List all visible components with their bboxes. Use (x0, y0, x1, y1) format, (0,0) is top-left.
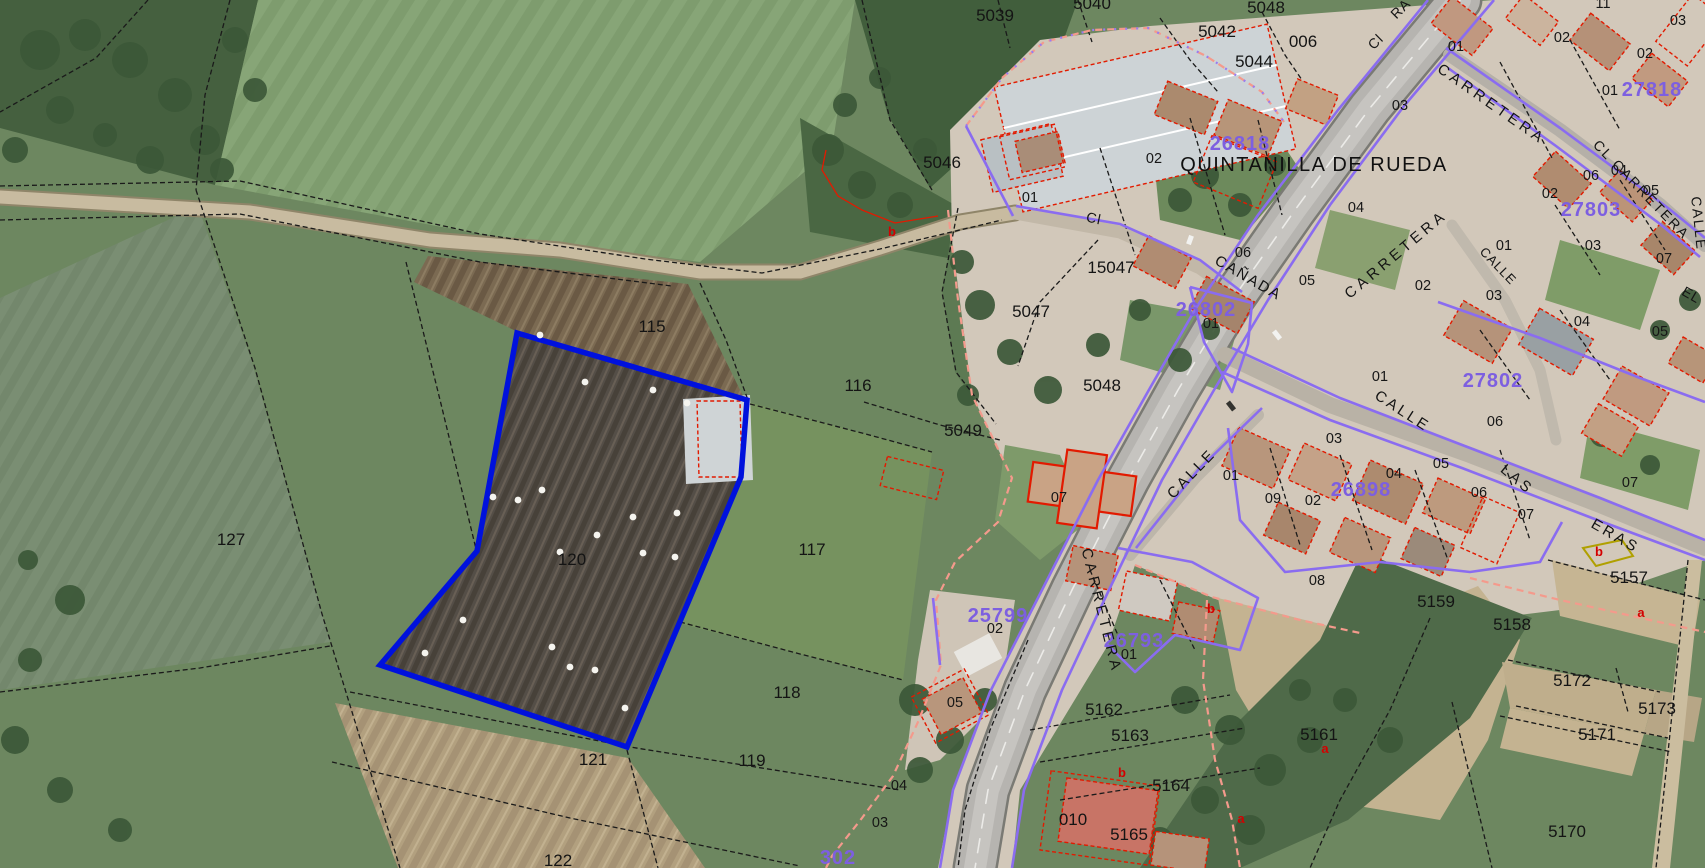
hay-bale-dot (537, 332, 544, 339)
unit-label-03: 03 (1486, 288, 1502, 304)
unit-label-06: 06 (1487, 414, 1503, 430)
parcel-label-5048: 5048 (1247, 0, 1285, 17)
parcel-label-119: 119 (738, 751, 765, 770)
hay-bale-dot (460, 617, 467, 624)
parcel-label-5159: 5159 (1417, 592, 1455, 611)
unit-label-09: 09 (1265, 491, 1281, 507)
unit-label-06: 06 (1235, 245, 1251, 261)
unit-label-05: 05 (1652, 324, 1668, 340)
hay-bale-dot (490, 494, 497, 501)
unit-label-01: 01 (1372, 369, 1388, 385)
hay-bale-dot (672, 554, 679, 561)
place-name-quintanilla-de-rueda: QUINTANILLA DE RUEDA (1180, 154, 1447, 176)
subparcel-letter-b: b (1207, 601, 1215, 616)
map-canvas[interactable]: 5039504050485042504400650461504750475048… (0, 0, 1705, 868)
subparcel-letter-a: a (1321, 741, 1329, 756)
hay-bale-dot (684, 400, 691, 407)
unit-label-02: 02 (1542, 186, 1558, 202)
hay-bale-dot (674, 510, 681, 517)
unit-label-01: 01 (1496, 238, 1512, 254)
parcel-label-5039: 5039 (976, 6, 1014, 25)
parcel-label-115: 115 (638, 317, 665, 336)
block-label-27803: 27803 (1561, 199, 1622, 221)
unit-label-05: 05 (1433, 456, 1449, 472)
unit-label-07: 07 (1518, 507, 1534, 523)
subparcel-letter-b: b (1595, 544, 1603, 559)
unit-label-05: 05 (1299, 273, 1315, 289)
unit-label-05: 05 (947, 695, 963, 711)
parcel-label-5161: 5161 (1300, 725, 1338, 744)
hay-bale-dot (567, 664, 574, 671)
parcel-label-5171: 5171 (1578, 725, 1616, 744)
parcel-label-5042: 5042 (1198, 22, 1236, 41)
parcel-label-010: 010 (1059, 810, 1087, 829)
subparcel-letter-b: b (888, 224, 896, 239)
unit-label-01: 01 (1448, 39, 1464, 55)
subparcel-letter-a: a (1237, 811, 1245, 826)
parcel-label-116: 116 (844, 376, 871, 395)
parcel-label-5040: 5040 (1073, 0, 1111, 13)
unit-label-03: 03 (1392, 98, 1408, 114)
parcel-label-120: 120 (558, 550, 586, 569)
unit-label-11: 11 (1595, 0, 1610, 12)
parcel-label-5172: 5172 (1553, 671, 1591, 690)
parcel-label-5049: 5049 (944, 421, 982, 440)
unit-label-03: 03 (1585, 238, 1601, 254)
hay-bale-dot (622, 705, 629, 712)
hay-bale-dot (422, 650, 429, 657)
block-label-27802: 27802 (1463, 370, 1524, 392)
hay-bale-dot (630, 514, 637, 521)
block-label-27818: 27818 (1622, 79, 1683, 101)
unit-label-01: 01 (1602, 83, 1618, 99)
unit-label-06: 06 (1471, 485, 1487, 501)
block-label-25799: 25799 (968, 605, 1029, 627)
parcel-label-15047: 15047 (1087, 258, 1134, 277)
parcel-label-5162: 5162 (1085, 700, 1123, 719)
hay-bale-dot (594, 532, 601, 539)
cadastral-map-viewport[interactable]: 5039504050485042504400650461504750475048… (0, 0, 1705, 868)
unit-label-08: 08 (1309, 573, 1325, 589)
parcel-label-5164: 5164 (1152, 776, 1190, 795)
unit-label-02: 02 (1305, 493, 1321, 509)
block-label-26802: 26802 (1176, 299, 1237, 321)
unit-label-01: 01 (1022, 190, 1038, 206)
unit-label-02: 02 (1554, 30, 1570, 46)
parcel-label-118: 118 (773, 683, 800, 702)
block-label-302: 302 (820, 847, 856, 868)
hay-bale-dot (592, 667, 599, 674)
unit-label-06: 06 (1583, 168, 1599, 184)
unit-label-04: 04 (1348, 200, 1364, 216)
unit-label-02: 02 (1637, 46, 1653, 62)
parcel-label-5157: 5157 (1610, 568, 1648, 587)
parcel-label-5163: 5163 (1111, 726, 1149, 745)
unit-label-04: 04 (891, 778, 907, 794)
parcel-label-5047: 5047 (1012, 302, 1050, 321)
block-label-26898: 26898 (1331, 479, 1392, 501)
hay-bale-dot (515, 497, 522, 504)
parcel-label-5048: 5048 (1083, 376, 1121, 395)
hay-bale-dot (539, 487, 546, 494)
hay-bale-dot (549, 644, 556, 651)
street-label-cl: Cl (1085, 209, 1103, 228)
unit-label-03: 03 (1326, 431, 1342, 447)
parcel-label-122: 122 (544, 851, 572, 868)
parcel-label-127: 127 (217, 530, 245, 549)
unit-label-03: 03 (1670, 13, 1686, 29)
parcel-label-5044: 5044 (1235, 52, 1273, 71)
hay-bale-dot (582, 379, 589, 386)
unit-label-07: 07 (1622, 475, 1638, 491)
hay-bale-dot (650, 387, 657, 394)
unit-label-07: 07 (1051, 490, 1067, 506)
unit-label-02: 02 (1415, 278, 1431, 294)
unit-label-07: 07 (1656, 251, 1672, 267)
hay-bale-dot (640, 550, 647, 557)
subparcel-letter-b: b (1118, 765, 1126, 780)
unit-label-03: 03 (872, 815, 888, 831)
parcel-label-5170: 5170 (1548, 822, 1586, 841)
parcel-label-5173: 5173 (1638, 699, 1676, 718)
unit-label-02: 02 (1146, 151, 1162, 167)
block-label-26818: 26818 (1210, 133, 1271, 155)
parcel-label-5165: 5165 (1110, 825, 1148, 844)
parcel-label-117: 117 (798, 540, 825, 559)
unit-label-01: 01 (1223, 468, 1239, 484)
subparcel-letter-a: a (1637, 605, 1645, 620)
aerial-terrain-layer (0, 0, 1705, 868)
unit-label-04: 04 (1574, 314, 1590, 330)
parcel-label-121: 121 (579, 750, 607, 769)
parcel-label-5158: 5158 (1493, 615, 1531, 634)
parcel-label-5046: 5046 (923, 153, 961, 172)
parcel-label-006: 006 (1289, 32, 1317, 51)
